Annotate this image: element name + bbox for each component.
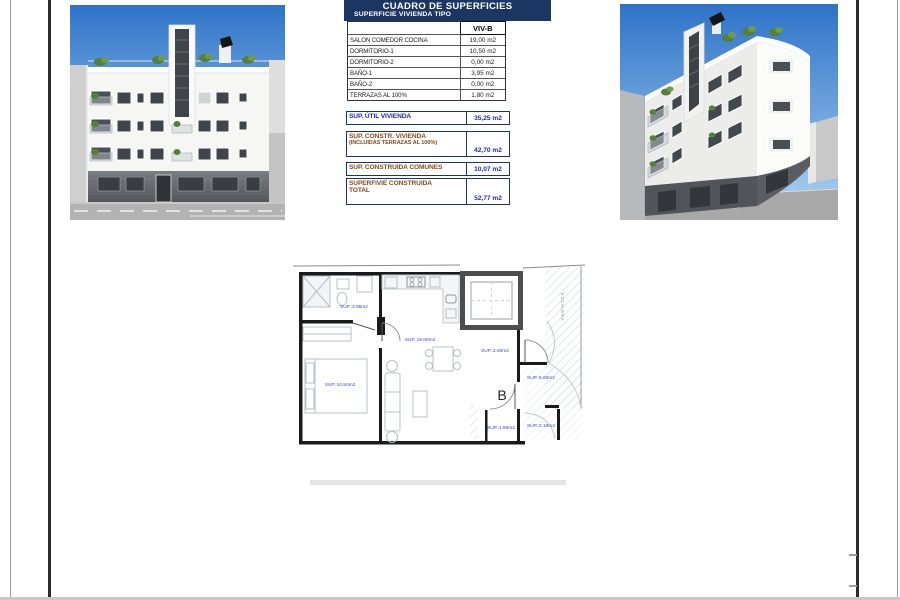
table-row-header: VIV-B [348, 22, 505, 34]
bedroom-furniture [303, 327, 367, 413]
room-label-bedroom: SUP.:10.50m2 [325, 382, 356, 388]
bathroom-fixtures [303, 276, 372, 307]
building-front-render [70, 5, 285, 220]
room-label-living: SUP.:19.00m2 [405, 337, 436, 343]
summary-row-total: SUPERFIVIE CONSTRUIDA TOTAL 52,77 m2 [346, 178, 510, 205]
document-sheet: CUADRO DE SUPERFICIES SUPERFICIE VIVIEND… [0, 0, 900, 600]
corner-windows [768, 59, 794, 152]
right-margin-rule [856, 0, 859, 600]
chimney [219, 36, 233, 63]
table-row: BAÑO-1 3,95 m2 [348, 67, 505, 78]
elevator-tower [684, 23, 704, 122]
louver-strip [470, 405, 478, 439]
living-furniture [385, 347, 461, 443]
margin-mark [849, 554, 857, 556]
summary-row-constr: SUP. CONSTR. VIVIENDA (INCLUIDAS TERRAZA… [346, 131, 510, 157]
staircase-label: ESCALERA [560, 293, 565, 321]
left-outer-border [10, 0, 11, 600]
unit-letter: B [497, 387, 506, 403]
table-row: BAÑO-2 0,00 m2 [348, 78, 505, 89]
room-label-hall: SUP.:2.60m2 [481, 348, 509, 354]
left-margin-rule [48, 0, 51, 600]
balconies [648, 106, 668, 178]
table-subtitle: SUPERFICIE VIVIENDA TIPO [344, 11, 551, 18]
entrance-door [156, 175, 171, 202]
column-header-vivb: VIV-B [460, 21, 506, 35]
table-header: CUADRO DE SUPERFICIES SUPERFICIE VIVIEND… [344, 0, 551, 21]
building-perspective-render [620, 4, 838, 220]
table-row: TERRAZAS AL 100% 1,80 m2 [348, 89, 505, 100]
elevator-tower [169, 25, 195, 125]
summary-row-comunes: SUP. CONSTRUIDA COMUNES 10,07 m2 [346, 162, 510, 176]
elevator-shaft [460, 271, 523, 330]
table-row: DORMITORIO-2 0,00 m2 [348, 56, 505, 67]
rooms-table: VIV-B SALON COMEDOR COCINA 19,00 m2 DORM… [347, 21, 506, 101]
table-row: SALON COMEDOR COCINA 19,00 m2 [348, 34, 505, 45]
summary-row-util: SUP. ÚTIL VIVIENDA 35,25 m2 [346, 111, 510, 125]
margin-mark [849, 585, 857, 587]
kitchen [382, 275, 459, 323]
room-label-right-terrace: SUP.:6.60m2 [527, 375, 555, 381]
right-outer-border [897, 0, 898, 600]
room-label-corner-terrace: SUP.:2.10m2 [527, 423, 555, 429]
room-label-bathroom: SUP.:3.95m2 [340, 304, 368, 310]
ground-floor [88, 171, 269, 202]
table-row: DORMITORIO-1 10,50 m2 [348, 45, 505, 56]
floor-plan: SUP.:3.95m2 SUP.:19.00m2 SUP.:10.50m2 SU… [293, 263, 585, 485]
left-neighbour-wall [70, 65, 88, 202]
left-neighbour-wall [620, 90, 645, 220]
room-label-terrace: SUP.:1.80m2 [487, 425, 515, 431]
